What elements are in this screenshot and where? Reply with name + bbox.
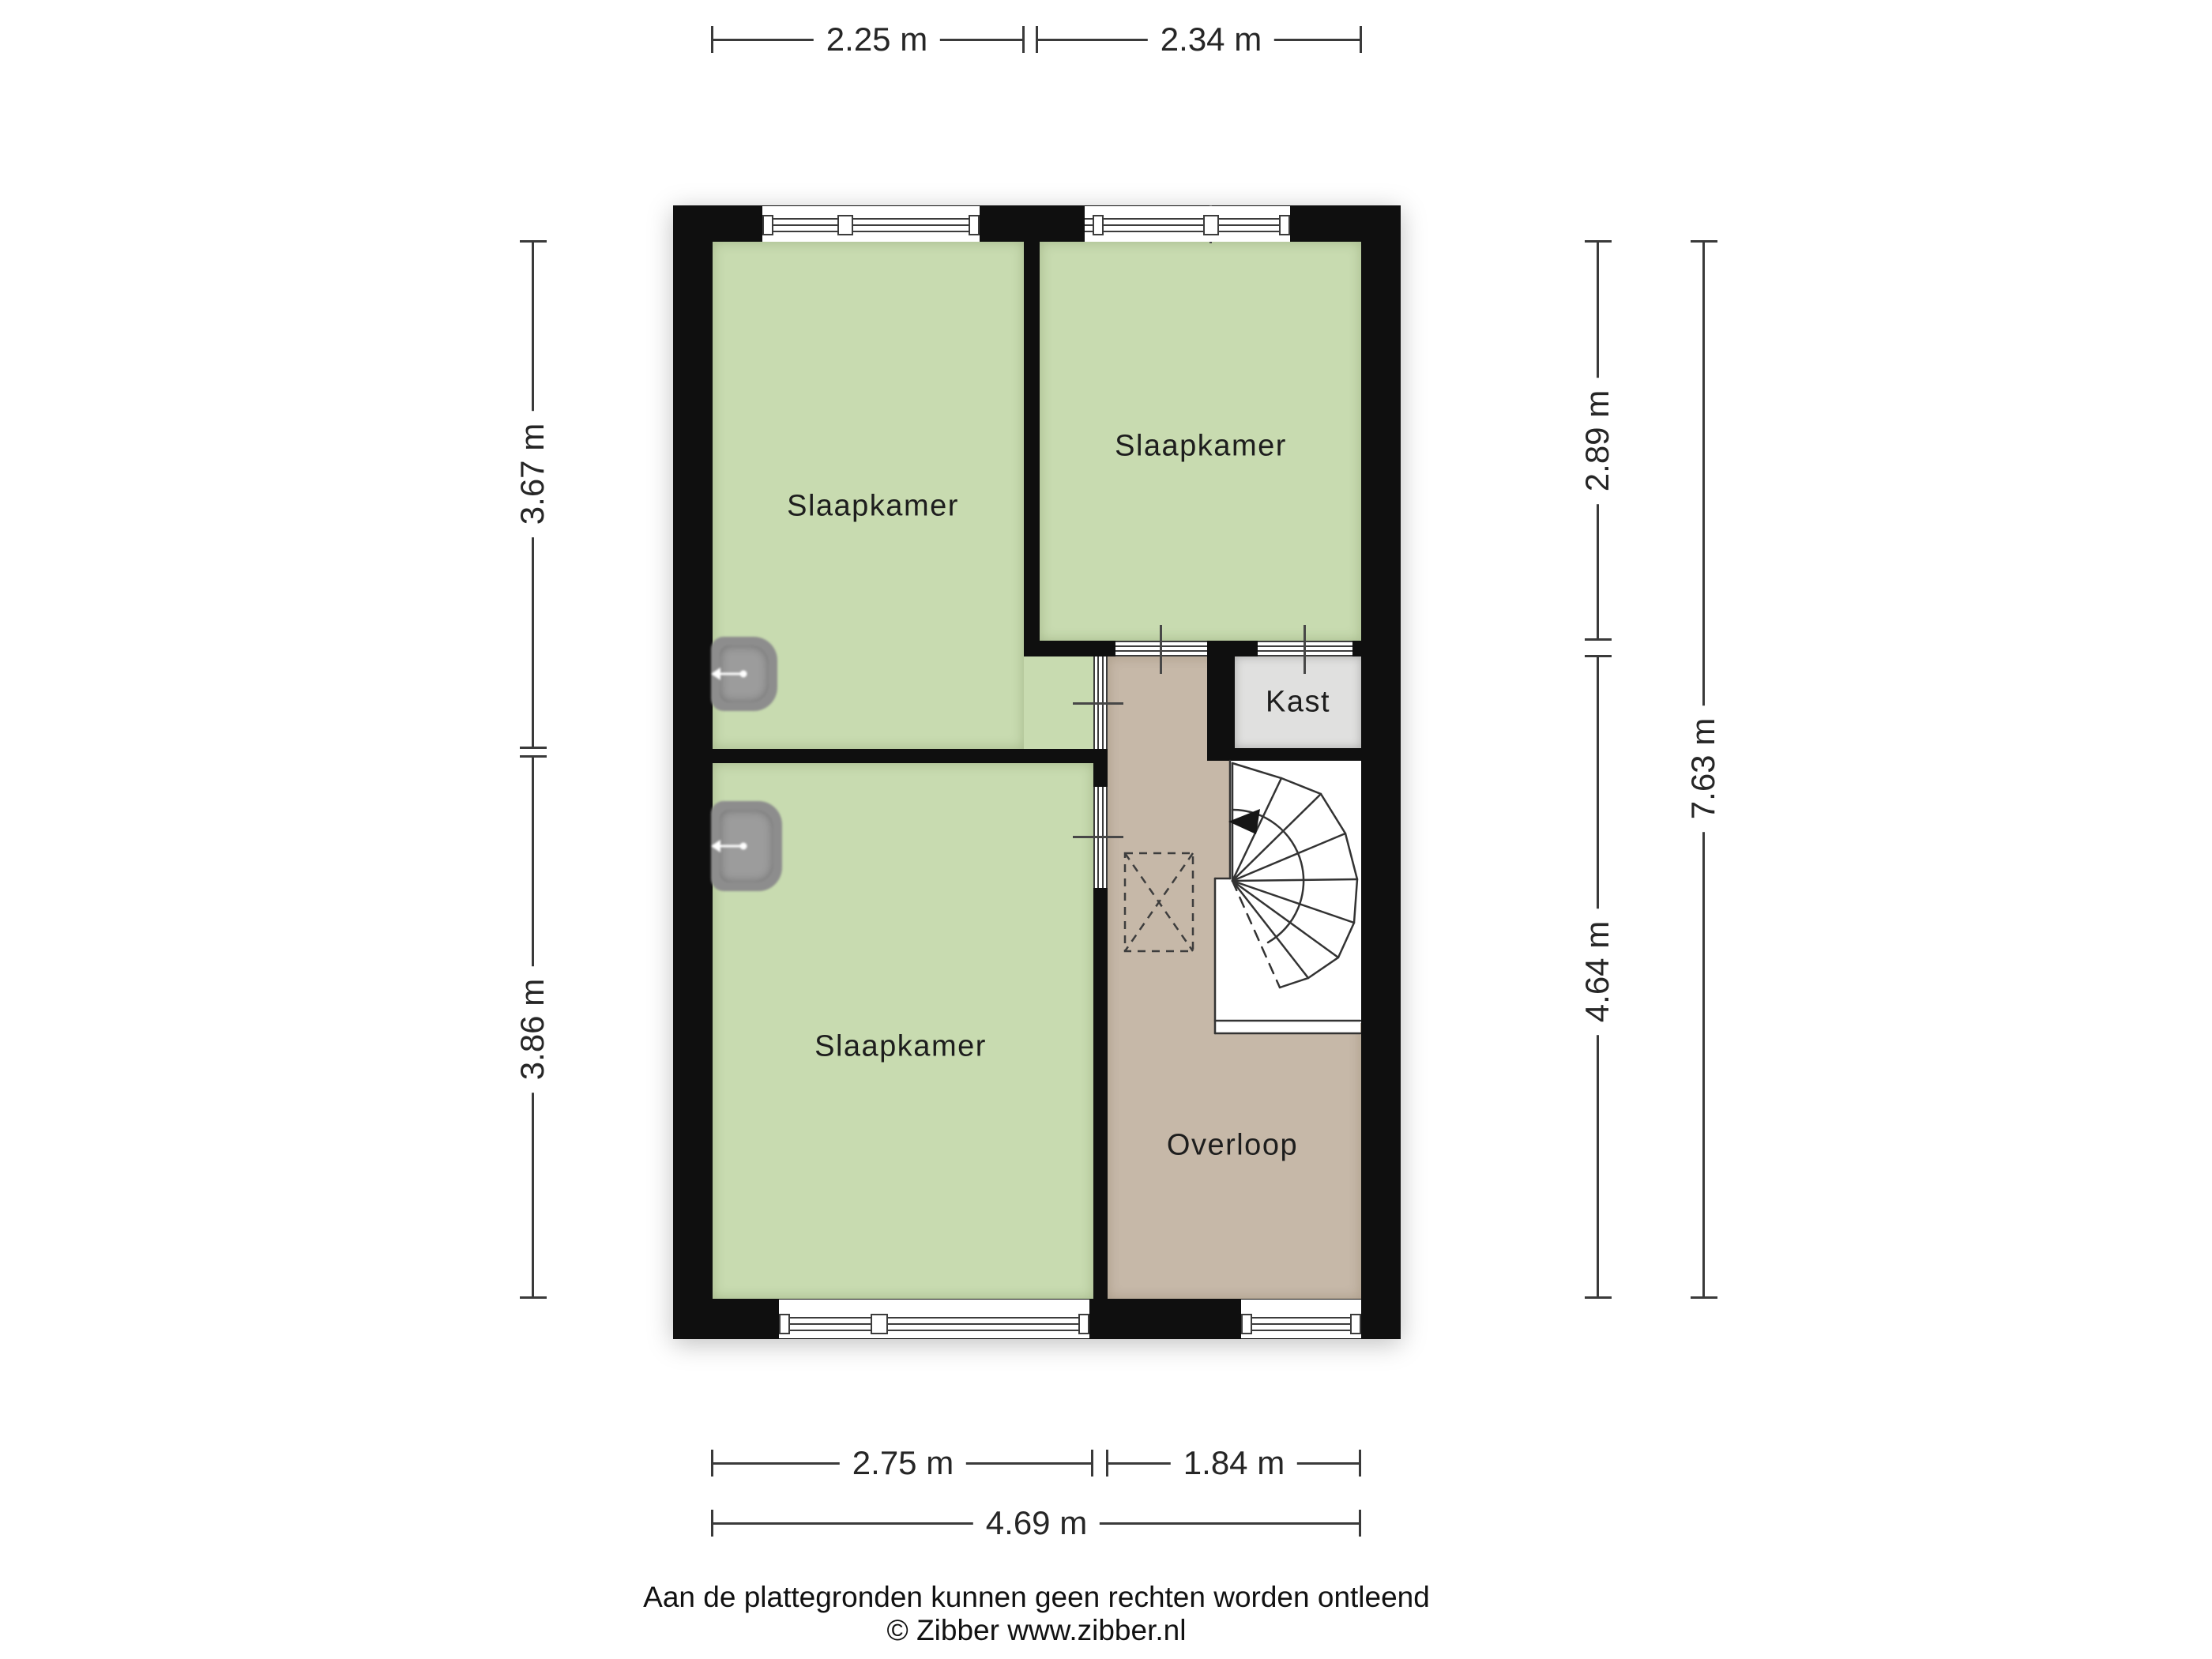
door-tick-bedroom-bottom-left [1073,836,1123,838]
window-landing [1241,1300,1361,1338]
dimension-label-bottom-1: 2.75 m [840,1443,966,1484]
spiral-staircase-icon [1181,758,1371,1043]
room-label-bedroom-top-right: Slaapkamer [1115,430,1287,464]
wall-bedroom2-south-c [1352,641,1361,656]
dimension-label-bottom-total: 4.69 m [973,1503,1100,1544]
dimension-label-bottom-2: 1.84 m [1171,1443,1297,1484]
dimension-label-left-2: 3.86 m [512,966,553,1093]
wall-bedroom2-south-a [1024,641,1115,656]
dimension-label-right-inner-1: 2.89 m [1577,378,1618,504]
room-label-bedroom-top-left: Slaapkamer [787,490,959,524]
wall-landing-junction-block [1093,763,1108,787]
wall-exterior-left [673,205,713,1339]
room-label-landing: Overloop [1167,1129,1298,1163]
sink-icon [711,637,777,711]
footer-disclaimer: Aan de plattegronden kunnen geen rechten… [643,1581,1430,1614]
wall-closet-west-pillar [1207,641,1235,761]
dimension-label-top-1: 2.25 m [814,19,940,60]
dimension-label-right-outer: 7.63 m [1683,705,1724,832]
window-bedroom-top-left [762,206,980,242]
room-label-bedroom-bottom-left: Slaapkamer [814,1030,987,1064]
window-frame-icon [779,1317,1089,1331]
dimension-label-right-inner-2: 4.64 m [1577,908,1618,1035]
footer-credit: © Zibber www.zibber.nl [887,1614,1187,1647]
wall-between-left-bedrooms [713,749,1108,763]
wall-landing-west-lower [1093,888,1108,1299]
faucet-icon [709,665,752,683]
door-tick-bedroom-top-left [1073,702,1123,705]
floor-plan-page: Slaapkamer Slaapkamer Slaapkamer Kast Ov… [0,0,2212,1659]
faucet-icon [709,837,752,855]
window-bedroom-top-right [1085,206,1290,242]
door-tick-closet [1303,625,1306,674]
dimension-label-top-2: 2.34 m [1148,19,1274,60]
ceiling-hatch-icon [1123,852,1194,953]
window-frame-icon [1241,1317,1361,1331]
door-tick-bedroom-top-right [1160,625,1162,674]
room-label-closet: Kast [1266,686,1330,720]
sink-icon [711,801,782,891]
wall-between-top-bedrooms [1024,242,1040,656]
dimension-label-left-1: 3.67 m [512,411,553,537]
window-frame-icon [1085,218,1290,232]
window-frame-icon [762,218,980,232]
window-bedroom-bottom-left [779,1300,1089,1338]
